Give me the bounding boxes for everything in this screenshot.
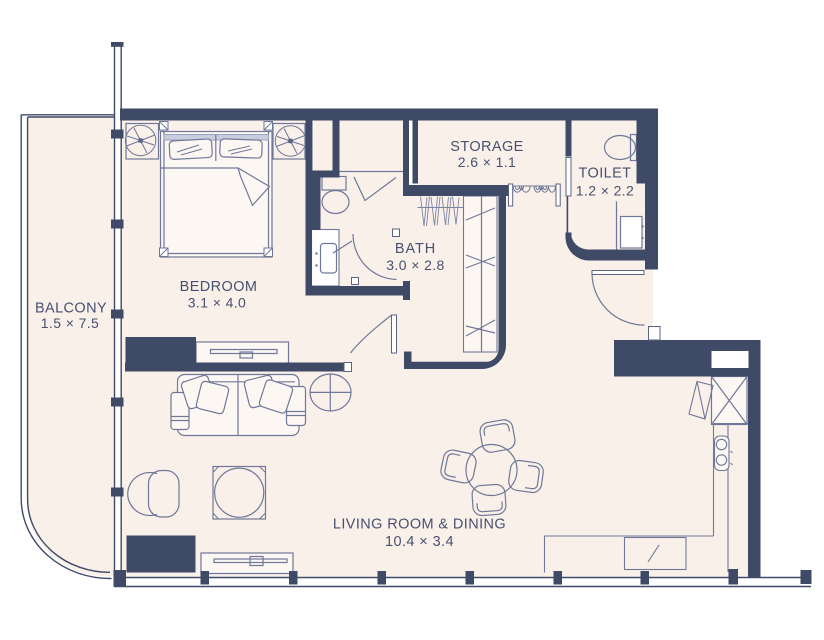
svg-text:1.2 × 2.2: 1.2 × 2.2 [576, 183, 634, 199]
svg-text:3.0 × 2.8: 3.0 × 2.8 [386, 257, 444, 273]
svg-text:3.1 × 4.0: 3.1 × 4.0 [188, 295, 246, 311]
svg-text:STORAGE: STORAGE [450, 139, 523, 155]
svg-text:TOILET: TOILET [579, 166, 632, 182]
svg-text:BATH: BATH [395, 241, 436, 257]
svg-text:10.4 × 3.4: 10.4 × 3.4 [385, 534, 454, 550]
svg-text:2.6 × 1.1: 2.6 × 1.1 [458, 154, 516, 170]
svg-text:LIVING ROOM & DINING: LIVING ROOM & DINING [333, 517, 506, 533]
svg-text:1.5 × 7.5: 1.5 × 7.5 [41, 315, 99, 331]
svg-text:BEDROOM: BEDROOM [180, 279, 258, 295]
